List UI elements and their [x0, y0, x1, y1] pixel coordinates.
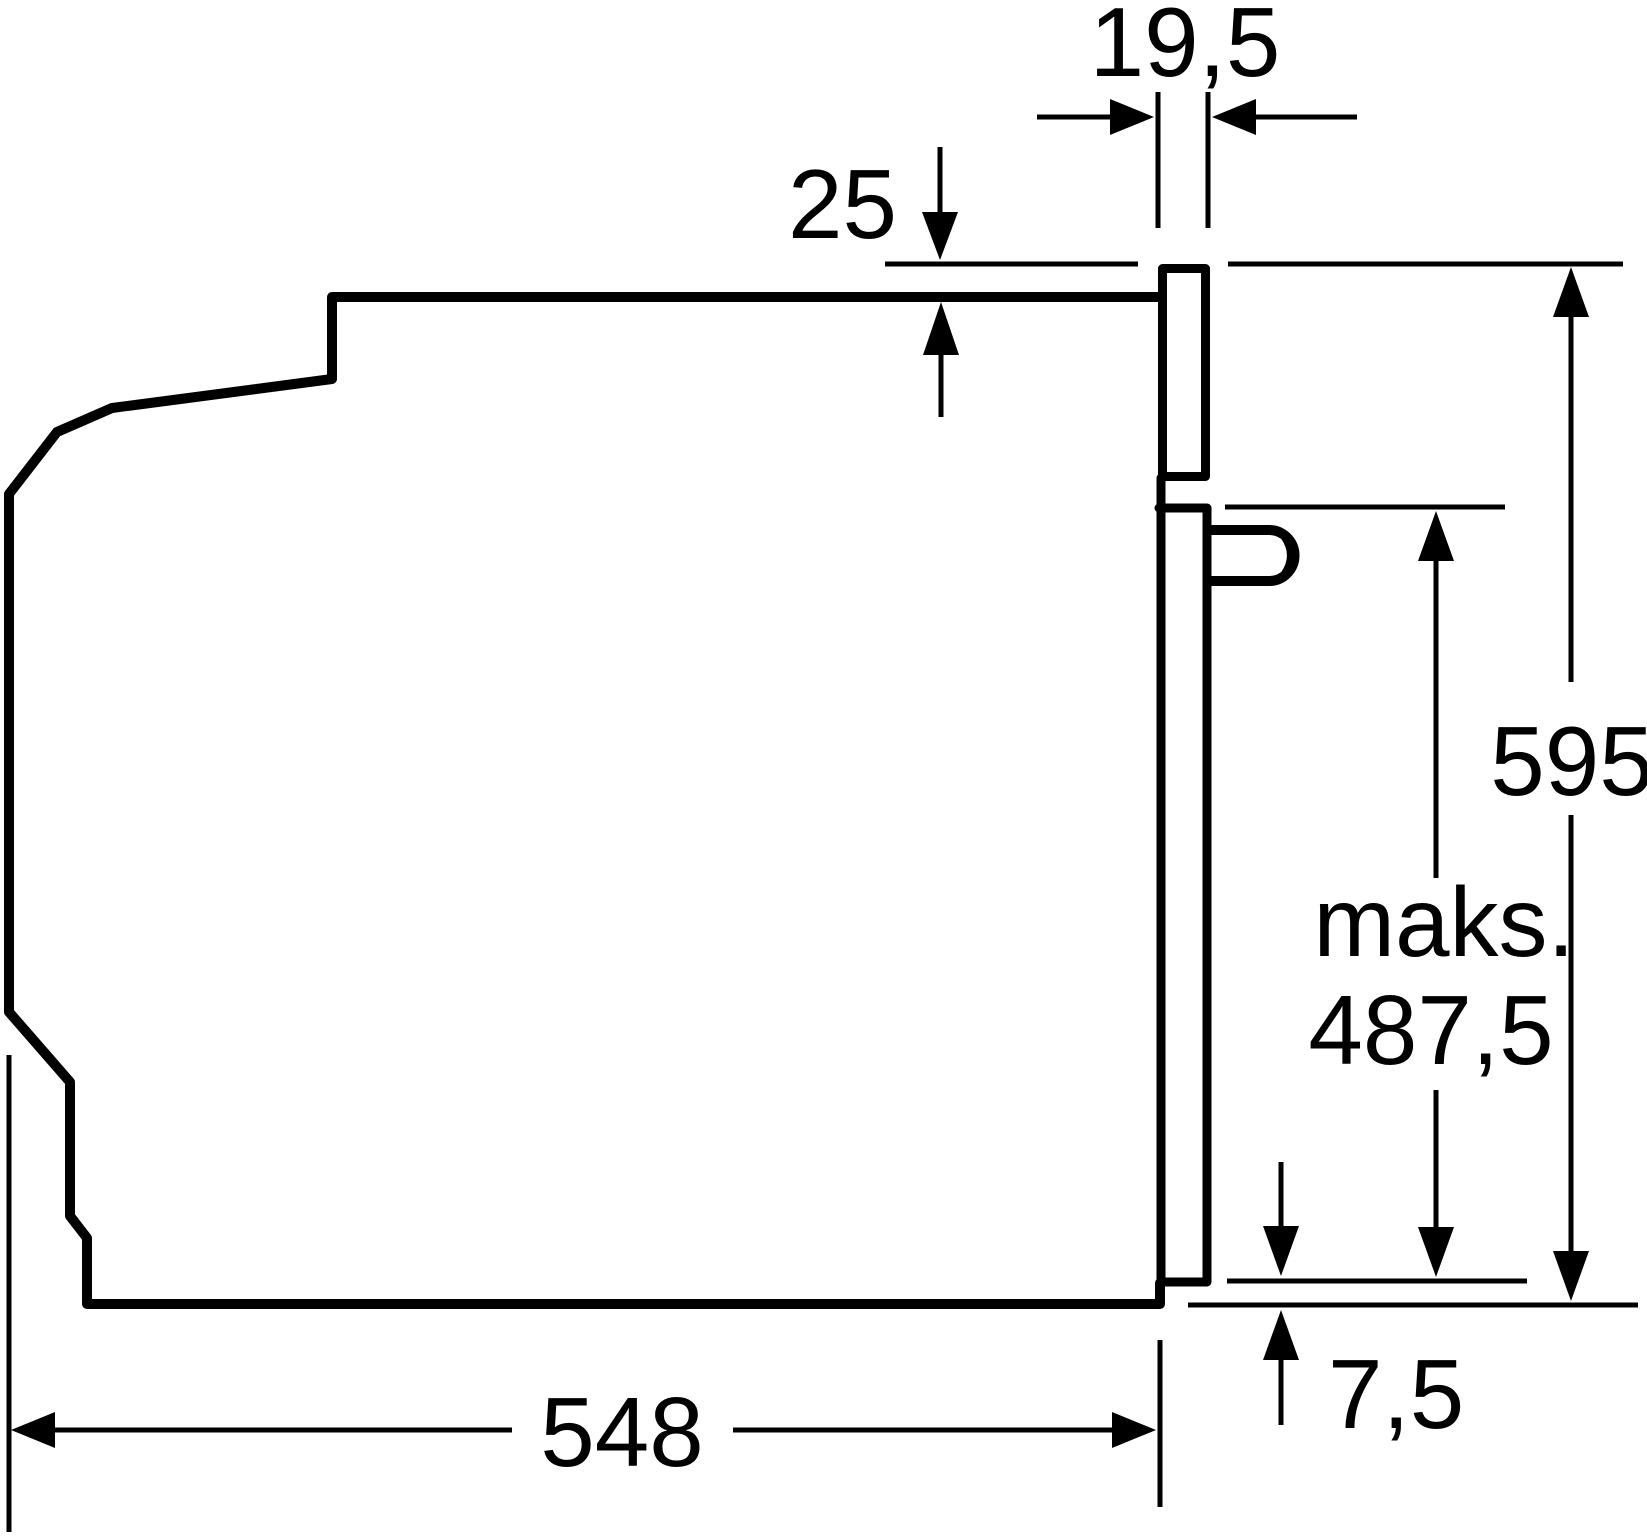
dim-label-front-height: 595	[1490, 706, 1647, 816]
dimension-depth: 548	[9, 1055, 1160, 1532]
dim-label-frame-thickness: 19,5	[1090, 0, 1281, 97]
arrowhead-down	[1553, 1251, 1589, 1301]
arrowhead-left	[11, 1412, 55, 1448]
door-handle-cap-detail	[1283, 537, 1290, 574]
oven-door-front	[1159, 508, 1207, 1282]
dim-label-top-overhang: 25	[788, 149, 897, 259]
oven-dimension-diagram: 19,5 25 595 mak	[0, 0, 1647, 1539]
dim-label-bottom-offset: 7,5	[1328, 1339, 1464, 1449]
arrowhead-up	[923, 302, 959, 355]
oven-body-outline	[9, 297, 1160, 1304]
dim-label-max-prefix: maks.	[1313, 867, 1574, 977]
dimension-max-handle-height: maks. 487,5	[1225, 507, 1575, 1277]
arrowhead-down	[1418, 1227, 1454, 1277]
arrowhead-right	[1110, 99, 1154, 135]
arrowhead-up	[1418, 511, 1454, 561]
dim-label-max-handle-height: 487,5	[1308, 975, 1553, 1085]
arrowhead-right	[1112, 1412, 1156, 1448]
arrowhead-up	[1553, 267, 1589, 317]
oven-body	[9, 269, 1295, 1305]
dimension-front-height: 595	[1490, 267, 1647, 1301]
dimension-drawing-canvas: 19,5 25 595 mak	[0, 0, 1647, 1539]
arrowhead-down	[922, 212, 958, 260]
arrowhead-up	[1263, 1310, 1299, 1360]
arrowhead-down	[1263, 1226, 1299, 1276]
dim-label-depth: 548	[540, 1377, 704, 1487]
dimension-frame-thickness: 19,5	[1037, 0, 1357, 228]
oven-front-panel	[1163, 269, 1206, 477]
arrowhead-left	[1212, 99, 1256, 135]
